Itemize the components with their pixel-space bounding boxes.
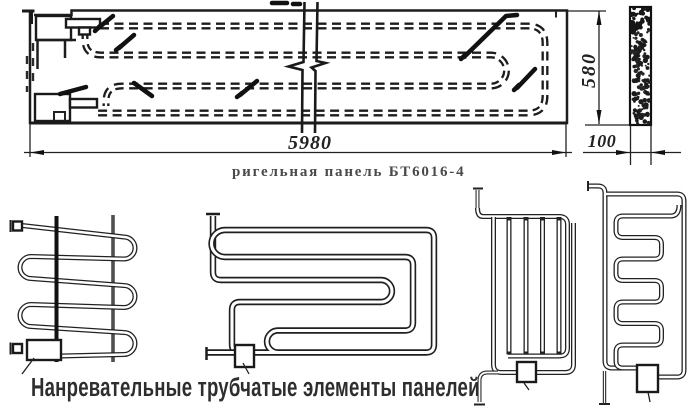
svg-text:Нанревательные трубчатые элеме: Нанревательные трубчатые элементы панеле… <box>31 373 480 402</box>
svg-text:100: 100 <box>588 131 617 151</box>
svg-text:ригельная панель БТ6016-4: ригельная панель БТ6016-4 <box>232 164 465 180</box>
svg-text:5980: 5980 <box>288 132 332 154</box>
svg-text:580: 580 <box>578 52 600 88</box>
